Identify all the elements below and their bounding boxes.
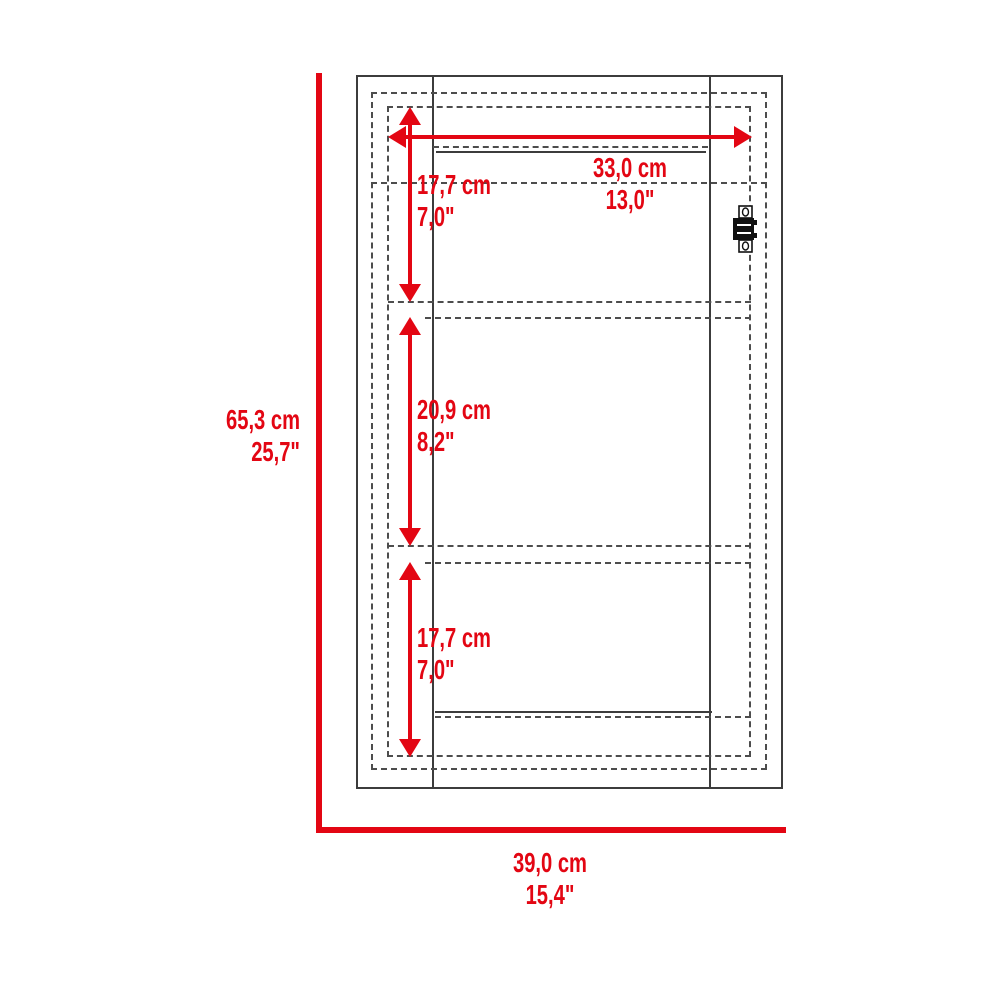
- overall-height-cm: 65,3 cm: [170, 404, 300, 436]
- width-extension-line: [316, 827, 786, 833]
- shelf-2-top-dashed-line: [388, 545, 751, 547]
- cabinet-dimension-diagram: 33,0 cm 13,0" 17,7 cm 7,0" 20,9 cm 8,2" …: [0, 0, 1000, 1000]
- overall-height-inches: 25,7": [170, 436, 300, 468]
- shelf-1-top-dashed-line: [388, 301, 751, 303]
- height-extension-line: [316, 73, 322, 832]
- shelf-2-bottom-dashed-line: [425, 562, 751, 564]
- middle-section-label: 20,9 cm 8,2": [417, 394, 491, 458]
- shelf-1-bottom-dashed-line: [425, 317, 751, 319]
- bottom-section-cm: 17,7 cm: [417, 622, 491, 654]
- middle-section-cm: 20,9 cm: [417, 394, 491, 426]
- interior-width-inches: 13,0": [565, 184, 695, 216]
- interior-width-cm: 33,0 cm: [565, 152, 695, 184]
- interior-width-label: 33,0 cm 13,0": [565, 152, 695, 216]
- overall-width-cm: 39,0 cm: [485, 847, 615, 879]
- overall-height-label: 65,3 cm 25,7": [170, 404, 300, 468]
- interior-width-arrow: [388, 126, 752, 148]
- middle-section-inches: 8,2": [417, 426, 491, 458]
- overall-width-inches: 15,4": [485, 879, 615, 911]
- overall-width-label: 39,0 cm 15,4": [485, 847, 615, 911]
- top-section-label: 17,7 cm 7,0": [417, 169, 491, 233]
- bottom-section-inches: 7,0": [417, 654, 491, 686]
- bottom-section-label: 17,7 cm 7,0": [417, 622, 491, 686]
- hinge-icon: [732, 205, 758, 253]
- bottom-panel-solid-line: [435, 711, 712, 713]
- top-section-cm: 17,7 cm: [417, 169, 491, 201]
- bottom-panel-dashed-line: [435, 716, 751, 718]
- top-section-inches: 7,0": [417, 201, 491, 233]
